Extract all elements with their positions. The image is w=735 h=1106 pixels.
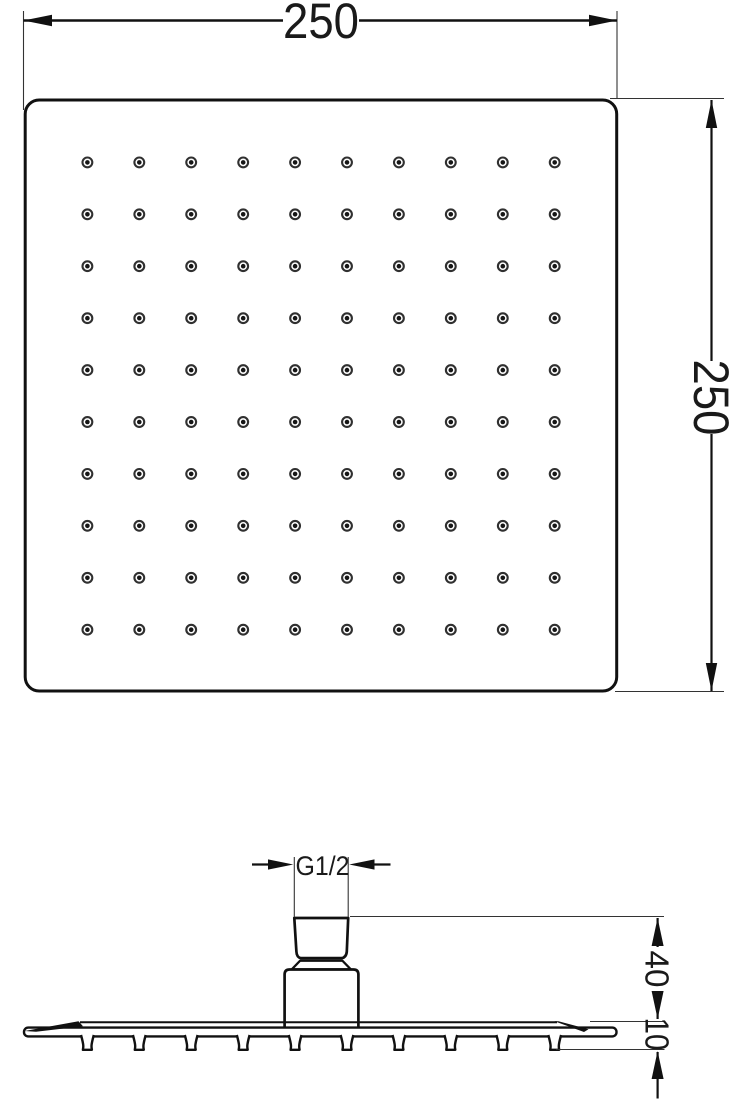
svg-text:40: 40 [638, 951, 675, 988]
svg-text:10: 10 [638, 1018, 675, 1051]
svg-text:250: 250 [283, 0, 359, 49]
svg-text:250: 250 [683, 360, 735, 436]
svg-text:G1/2: G1/2 [296, 851, 350, 881]
